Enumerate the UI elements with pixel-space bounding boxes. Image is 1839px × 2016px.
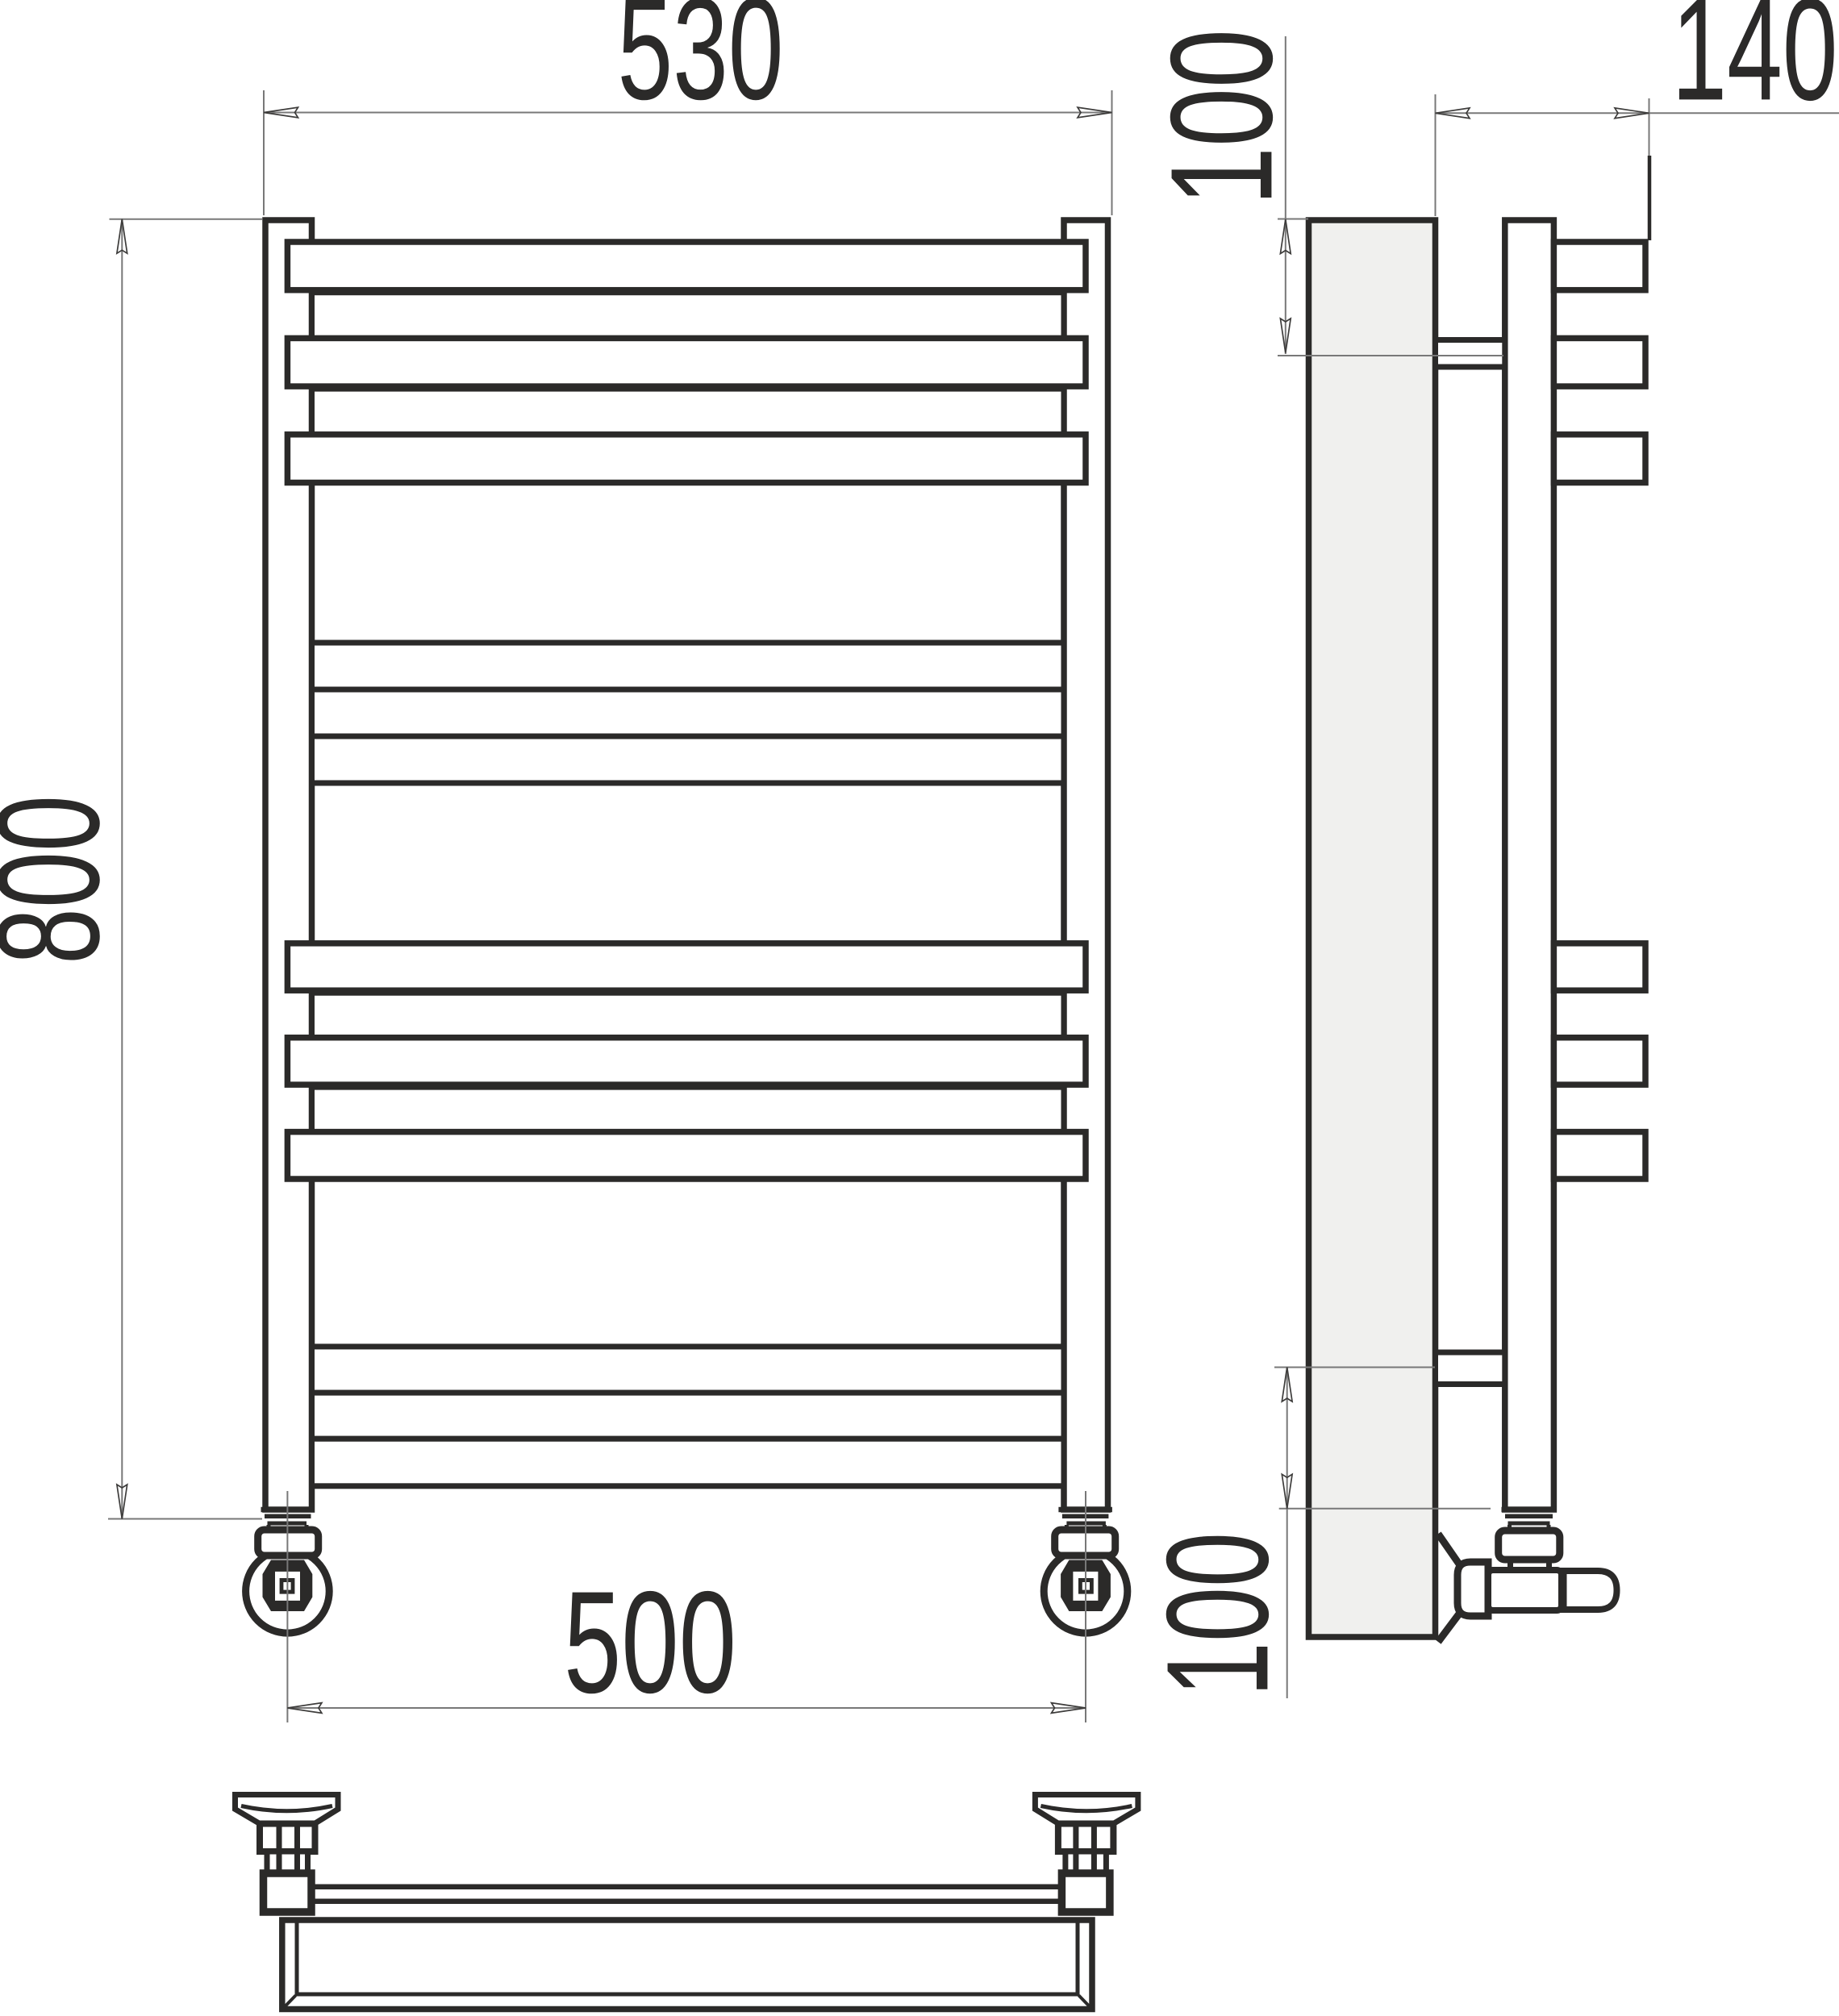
- svg-text:800: 800: [0, 795, 130, 964]
- svg-text:100: 100: [1141, 29, 1303, 206]
- svg-text:100: 100: [1136, 1532, 1299, 1697]
- svg-text:500: 500: [564, 1562, 736, 1724]
- svg-text:530: 530: [618, 0, 784, 131]
- svg-text:140: 140: [1672, 0, 1838, 131]
